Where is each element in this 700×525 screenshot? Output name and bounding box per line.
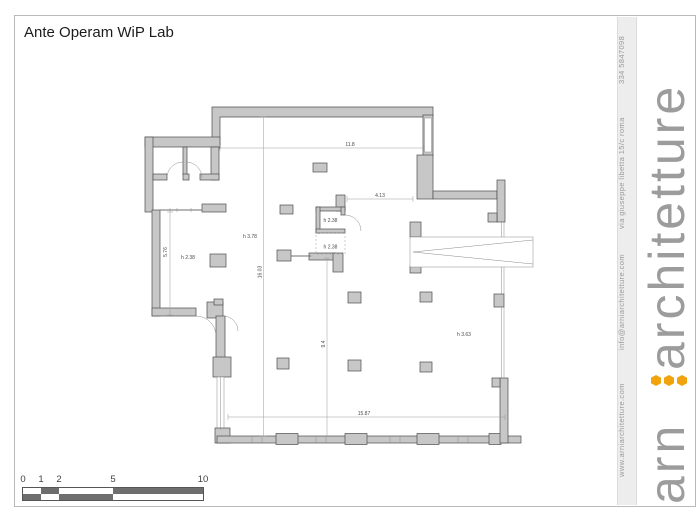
room-center-jamb (341, 207, 345, 215)
pillar (313, 163, 327, 172)
scale-segment (59, 494, 113, 500)
wall-entry-notch (214, 299, 223, 305)
wall-rooms-bottom-mid (183, 174, 189, 180)
scale-segment (41, 488, 59, 494)
dim-label-right-offset: 4.13 (375, 193, 385, 199)
window-bottom-4 (489, 434, 501, 445)
height-label-left-zone: h 2.38 (181, 255, 195, 261)
wall-topright-block (417, 155, 433, 199)
sidebar-phone: 334 5847098 (617, 22, 637, 98)
pillar (420, 362, 432, 372)
radiator-left (202, 204, 226, 212)
scale-bar: 0 1 2 5 10 (22, 474, 204, 504)
wall-topright-horizontal (433, 191, 497, 199)
height-label-small-room-lower: h 2.38 (324, 245, 338, 251)
hexagon-icon (677, 375, 687, 386)
dim-label-inner-height: 9.4 (321, 340, 327, 347)
wall-right-mid-piece (494, 294, 504, 307)
pillar (210, 254, 226, 267)
door-arc-room1 (167, 162, 183, 178)
wall-lowerleft (216, 316, 225, 360)
wall-rooms-bottom-right (200, 174, 219, 180)
wall-mid-block (277, 250, 291, 261)
scale-label-2: 2 (56, 474, 61, 485)
hexagon-icon (664, 375, 674, 386)
dim-label-top-width: 11.8 (345, 142, 355, 148)
scale-label-5: 5 (110, 474, 115, 485)
wall-lowerleft-block (213, 357, 231, 377)
plan-walls (145, 107, 521, 445)
wall-bottom (217, 436, 521, 443)
pillar (280, 205, 293, 214)
floor-plan: 11.8 4.13 15.87 16.03 5.76 9.4 h 3.78 h … (140, 95, 560, 465)
window-bottom-1 (276, 434, 298, 445)
pillar-ramp-top (410, 222, 421, 237)
ramp (410, 237, 533, 267)
logo-text-arn: arn (636, 396, 698, 504)
wall-rooms-left (145, 137, 153, 212)
room-center-bottom (316, 229, 345, 233)
room-center-top (316, 207, 345, 211)
pillar (348, 360, 361, 371)
pillar (348, 292, 361, 303)
page-title: Ante Operam WiP Lab (24, 24, 174, 41)
wall-rooms-bottom-left (153, 174, 167, 180)
door-arc-center-room (345, 215, 361, 231)
pillar (420, 292, 432, 302)
height-label-main-hall: h 3.78 (243, 234, 257, 240)
scale-segment (23, 494, 41, 500)
scale-label-0: 0 (20, 474, 25, 485)
scale-bar-strip (22, 487, 204, 501)
wall-topright-foot (488, 213, 497, 222)
hexagon-icon (651, 375, 661, 386)
wall-mid-step-v (333, 253, 343, 272)
wall-top (212, 107, 433, 148)
scale-label-1: 1 (38, 474, 43, 485)
wall-topright-vertical (497, 180, 505, 222)
dim-label-bottom-width: 15.87 (358, 411, 371, 417)
sidebar-email: info@arniarchitetture.com (617, 252, 637, 352)
height-label-small-room: h 2.38 (324, 218, 338, 224)
window-bottom-3 (417, 434, 439, 445)
wall-left-main (152, 210, 160, 316)
wall-bottomright-step (492, 378, 500, 387)
door-arc-entry-left (196, 316, 216, 336)
height-label-right-hall: h 3.63 (457, 332, 471, 338)
window-bottom-2 (345, 434, 367, 445)
wall-rooms-top (145, 137, 220, 147)
wall-bottomleft-horizontal (152, 308, 196, 316)
dim-label-left-height: 5.76 (163, 247, 169, 257)
wall-bottomright (500, 378, 508, 443)
pillar (277, 358, 289, 369)
window-topright (425, 118, 432, 152)
wall-rooms-partition (183, 147, 187, 175)
sidebar-address: via giuseppe libetta 15/c roma (617, 100, 637, 246)
logo-hexagons-icon (651, 375, 687, 386)
dashed-room-outline (316, 233, 345, 254)
logo-text-architetture: architetture (636, 14, 698, 370)
scale-label-10: 10 (198, 474, 209, 485)
dim-label-total-height: 16.03 (258, 266, 264, 279)
sidebar-website: www.arniarchitetture.com (617, 357, 637, 503)
scale-segment (113, 488, 203, 494)
